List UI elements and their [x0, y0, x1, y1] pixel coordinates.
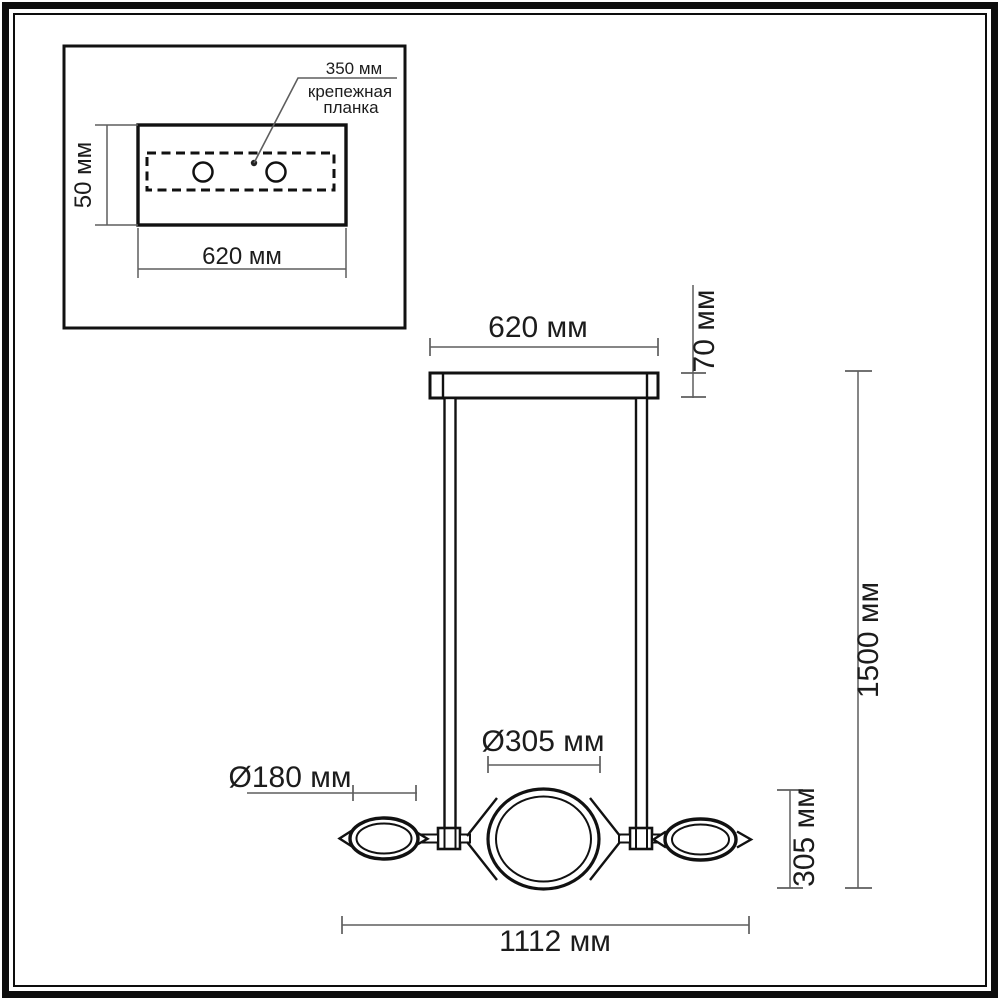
- pendant-lamp-technical-drawing: 350 мм крепежная планка 50 мм 620 мм: [0, 0, 1000, 1000]
- side-shade-diameter-label: Ø180 мм: [229, 761, 352, 794]
- overall-height-label: 1500 мм: [852, 582, 885, 698]
- plate-length-label: 620 мм: [202, 243, 282, 270]
- mounting-plate-inset: 350 мм крепежная планка 50 мм 620 мм: [64, 46, 405, 328]
- canopy-length-label: 620 мм: [488, 311, 588, 344]
- center-shade-outer-ring: [488, 789, 599, 889]
- pendant-front-view: 620 мм 70 мм 1500 мм: [229, 285, 885, 958]
- center-shade-diameter-label: Ø305 мм: [482, 725, 605, 758]
- bracket-length-label: 350 мм: [326, 59, 382, 78]
- dimension-drawing-page: 350 мм крепежная планка 50 мм 620 мм: [0, 0, 1000, 1000]
- suspension-rod-left: [445, 398, 456, 829]
- canopy-bar: [430, 373, 658, 398]
- rod-connector-left: [438, 828, 460, 849]
- rod-connector-right: [630, 828, 652, 849]
- center-shade-height-label: 305 мм: [788, 787, 821, 887]
- side-shade-right-tip-outer: [737, 832, 751, 848]
- screw-hole-left: [194, 163, 213, 182]
- arm-right-inner: [619, 835, 630, 843]
- plate-height-label: 50 мм: [70, 142, 97, 208]
- plate-outline: [138, 125, 346, 225]
- bracket-name-label-line2: планка: [323, 98, 379, 117]
- screw-hole-right: [267, 163, 286, 182]
- canopy-height-label: 70 мм: [688, 290, 721, 373]
- suspension-rod-right: [636, 398, 647, 829]
- overall-length-label: 1112 мм: [499, 925, 611, 958]
